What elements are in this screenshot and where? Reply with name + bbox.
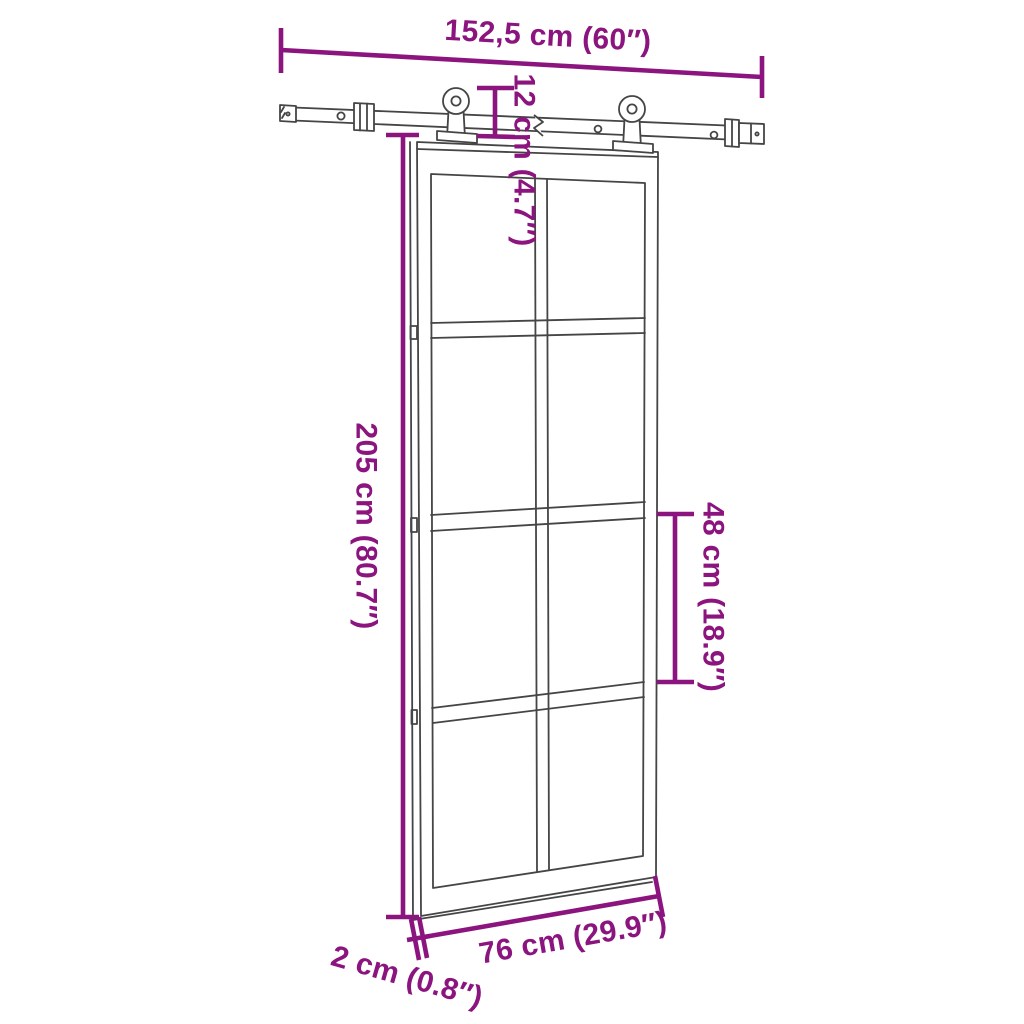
diagram-canvas: 152,5 cm (60″) 12 cm (4.7″) 205 cm (80.7… — [0, 0, 1024, 1024]
door — [410, 142, 658, 920]
dimension-panel-height: 48 cm (18.9″) — [657, 502, 730, 692]
dim-label-hanger-height: 12 cm (4.7″) — [508, 73, 541, 246]
mullion-side-mark — [412, 710, 418, 724]
mullion-side-mark — [411, 518, 417, 532]
rail-hole — [711, 132, 718, 139]
product-dimension-diagram: 152,5 cm (60″) 12 cm (4.7″) 205 cm (80.7… — [0, 0, 1024, 1024]
dim-label-door-thickness: 2 cm (0.8″) — [327, 940, 486, 1015]
roller-axle — [451, 96, 460, 105]
dim-label-door-width: 76 cm (29.9″) — [477, 905, 670, 970]
hanger-plate — [437, 131, 477, 143]
dim-label-track-length: 152,5 cm (60″) — [444, 14, 653, 59]
dim-label-panel-height: 48 cm (18.9″) — [697, 502, 730, 692]
hanger-plate — [613, 141, 653, 153]
rail-hole — [595, 126, 602, 133]
roller-axle — [627, 104, 636, 113]
rail-end-dot — [286, 112, 289, 115]
rail-end-dot — [755, 132, 758, 135]
rail-coupling-left — [354, 103, 374, 131]
rail-hole — [337, 112, 344, 119]
dimension-door-height: 205 cm (80.7″) — [350, 135, 420, 917]
dimension-door-thickness: 2 cm (0.8″) — [327, 919, 486, 1014]
dim-label-door-height: 205 cm (80.7″) — [350, 422, 383, 629]
dim-line — [407, 936, 430, 940]
